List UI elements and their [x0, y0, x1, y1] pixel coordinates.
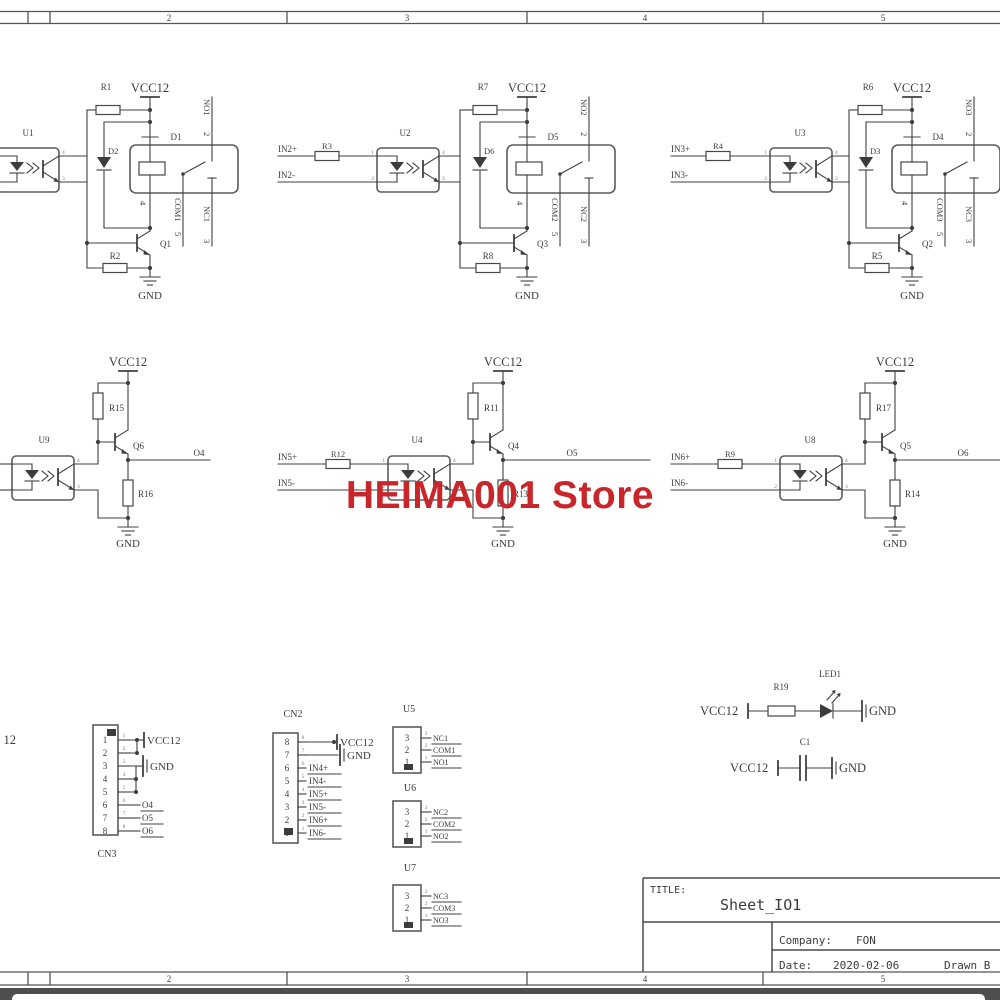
zone-number: 2	[167, 974, 172, 984]
bottom-page-edge	[0, 988, 1000, 1000]
pin-number: 2	[579, 132, 589, 136]
pin-number: 3	[202, 239, 212, 243]
pin-number: 2	[285, 815, 290, 825]
vcc-label: VCC12	[484, 355, 522, 369]
input-port: IN5+	[278, 452, 297, 462]
resistor-icon	[890, 480, 900, 506]
transistor-ref: Q4	[508, 441, 519, 451]
pin-number: 7	[302, 748, 305, 754]
signal-label: NC1	[433, 734, 448, 743]
pin-number: 5	[123, 785, 126, 791]
resistor-icon	[123, 480, 133, 506]
resistor-ref: R6	[863, 82, 874, 92]
title-block: TITLE: Sheet_IO1 Company: FON Date: 2020…	[643, 878, 1000, 972]
npn-transistor-icon	[137, 231, 150, 255]
gnd-label: GND	[900, 290, 924, 302]
resistor-ref: R16	[138, 489, 154, 499]
pin-number: 6	[302, 761, 305, 767]
pin-number: 4	[442, 150, 445, 156]
vcc-label: VCC12	[893, 81, 931, 95]
pin-number: 7	[103, 813, 108, 823]
company-label: Company:	[779, 934, 832, 947]
resistor-icon	[860, 393, 870, 419]
pin-number: 3	[405, 733, 410, 743]
optocoupler-icon	[770, 148, 832, 192]
date-value: 2020-02-06	[833, 959, 899, 972]
cap-ref: C1	[800, 737, 811, 747]
cn3-connector: 1 2 3 4 5 6 7 8 1 2 3 4 5 6 7 8 VCC12 GN…	[93, 725, 181, 860]
connector-ref: U5	[403, 704, 415, 715]
input-port: IN6-	[309, 828, 326, 838]
input-port: IN6+	[671, 452, 690, 462]
power-bar-icon	[886, 371, 904, 378]
input-port: IN3-	[671, 170, 688, 180]
resistor-icon	[865, 264, 889, 273]
pin-number: 8	[302, 735, 305, 741]
drawn-by-label: Drawn B	[944, 959, 991, 972]
pin-number: 4	[302, 787, 305, 793]
resistor-icon	[315, 152, 339, 161]
optocoupler-icon	[12, 456, 74, 500]
transistor-ref: Q1	[160, 239, 171, 249]
pin-number: 4	[515, 201, 525, 206]
relay-icon	[892, 145, 1000, 193]
power-bar-icon	[518, 97, 536, 104]
schematic-page: 2 3 4 5 2 3 4 5 12 VCC12 R1 U1 4 3 Q1 R2…	[0, 0, 1000, 1000]
pin-number: 3	[442, 176, 445, 182]
pin-number: 1	[382, 458, 385, 464]
resistor-ref: R1	[101, 82, 112, 92]
relay-nc-label: NC3	[964, 206, 974, 222]
input-port: IN4-	[309, 776, 326, 786]
pin-number: 3	[77, 484, 80, 490]
resistor-ref: R15	[109, 403, 125, 413]
pin-number: 4	[453, 458, 456, 464]
pin-number: 2	[425, 817, 428, 823]
gnd-label: GND	[491, 538, 515, 550]
pin-number: 2	[371, 176, 374, 182]
resistor-icon	[718, 460, 742, 469]
company-value: FON	[856, 934, 876, 947]
pin-number: 2	[425, 743, 428, 749]
resistor-icon	[858, 106, 882, 115]
resistor-ref: R4	[713, 141, 724, 151]
date-label: Date:	[779, 959, 812, 972]
npn-transistor-icon	[899, 231, 912, 255]
signal-label: NC2	[433, 808, 448, 817]
pin-number: 3	[835, 176, 838, 182]
vcc-label: VCC12	[730, 761, 768, 775]
relay-ref: D5	[548, 132, 559, 142]
zone-number: 5	[881, 13, 886, 23]
relay-com-label: COM1	[173, 198, 183, 222]
transistor-ref: Q2	[922, 239, 933, 249]
output-port: O6	[958, 448, 969, 458]
pin-number: 1	[103, 735, 108, 745]
vcc-label: VCC12	[147, 735, 181, 747]
output-port: O5	[142, 813, 153, 823]
ground-icon	[118, 518, 138, 535]
driver-channel-3: VCC12 R17 Q5 O6 R14 GND IN6+ R9 IN6- U8 …	[671, 355, 1000, 550]
pin-number: 3	[285, 802, 290, 812]
bottom-ruler: 2 3 4 5	[0, 972, 1000, 985]
pin-number: 3	[103, 761, 108, 771]
vcc-label: VCC12	[700, 704, 738, 718]
relay-output-header-u7: U7 3 2 1 3 2 1 NC3 COM3 NO3	[393, 863, 461, 931]
pin-number: 1	[425, 913, 428, 919]
pin-number: 2	[405, 903, 410, 913]
pin-number: 1	[285, 828, 290, 838]
pin-number: 3	[425, 805, 428, 811]
input-port: IN5-	[309, 802, 326, 812]
pin-number: 2	[103, 748, 108, 758]
zone-number: 3	[405, 13, 410, 23]
relay-no-label: NO1	[202, 99, 212, 116]
pin-number: 1	[405, 831, 410, 841]
pin-number: 8	[103, 826, 108, 836]
pin-number: 1	[302, 826, 305, 832]
pin-number: 4	[845, 458, 848, 464]
pin-number: 5	[285, 776, 290, 786]
connector-ref: U6	[404, 783, 416, 794]
vcc-label: VCC12	[876, 355, 914, 369]
resistor-icon	[468, 393, 478, 419]
led-indicator-circuit: LED1 R19 VCC12 GND	[700, 669, 896, 721]
input-port: IN5+	[309, 789, 328, 799]
resistor-ref: R12	[331, 449, 345, 459]
pin-number: 2	[964, 132, 974, 136]
zone-number: 2	[167, 13, 172, 23]
transistor-ref: Q5	[900, 441, 911, 451]
pin-number: 3	[964, 239, 974, 243]
relay-ref: D4	[933, 132, 944, 142]
resistor-ref: R8	[483, 251, 494, 261]
ground-icon	[493, 518, 513, 535]
opto-ref: U9	[39, 435, 50, 445]
gnd-label: GND	[347, 750, 371, 762]
input-port: IN6+	[309, 815, 328, 825]
pin-number: 1	[405, 757, 410, 767]
pin-number: 4	[123, 772, 126, 778]
relay-nc-label: NC1	[202, 206, 212, 222]
transistor-ref: Q3	[537, 239, 548, 249]
resistor-icon	[706, 152, 730, 161]
pin-number: 1	[764, 150, 767, 156]
pin-number: 1	[774, 458, 777, 464]
resistor-ref: R7	[478, 82, 489, 92]
vcc-label: VCC12	[340, 737, 374, 749]
led-ref: LED1	[819, 669, 841, 679]
signal-label: COM1	[433, 746, 455, 755]
capacitor-icon	[800, 756, 806, 780]
pin-number: 5	[550, 232, 560, 236]
pin-number: 4	[62, 150, 65, 156]
pin1-marker	[107, 729, 116, 736]
pin-number: 3	[845, 484, 848, 490]
pin-number: 4	[138, 201, 148, 206]
pin-number: 2	[123, 746, 126, 752]
relay-no-label: NO3	[964, 99, 974, 116]
gnd-label: GND	[116, 538, 140, 550]
vcc-label: VCC12	[109, 355, 147, 369]
pin-number: 2	[302, 813, 305, 819]
input-port: IN6-	[671, 478, 688, 488]
pin-number: 3	[425, 731, 428, 737]
relay-nc-label: NC2	[579, 206, 589, 222]
pin-number: 8	[123, 824, 126, 830]
pin-number: 2	[202, 132, 212, 136]
input-port: IN2+	[278, 144, 297, 154]
signal-label: NO3	[433, 916, 449, 925]
opto-ref: U3	[795, 128, 806, 138]
diode-icon	[859, 157, 873, 170]
power-bar-icon	[494, 371, 512, 378]
pin-number: 8	[285, 737, 290, 747]
zone-number: 4	[643, 974, 648, 984]
pin-number: 5	[935, 232, 945, 236]
pin-number: 1	[425, 755, 428, 761]
pin-number: 1	[405, 915, 410, 925]
npn-transistor-icon	[882, 430, 895, 454]
relay-output-header-u6: U6 3 2 1 3 2 1 NC2 COM2 NO2	[393, 783, 461, 847]
diode-ref: D6	[484, 146, 494, 156]
pin-number: 4	[900, 201, 910, 206]
pin-number: 6	[285, 763, 290, 773]
pin-number: 1	[425, 829, 428, 835]
pin-number: 3	[405, 891, 410, 901]
gnd-label: GND	[150, 761, 174, 773]
vcc-label: VCC12	[508, 81, 546, 95]
ground-icon	[143, 756, 147, 776]
signal-label: COM3	[433, 904, 455, 913]
resistor-icon	[768, 706, 795, 716]
opto-ref: U8	[805, 435, 816, 445]
resistor-icon	[93, 393, 103, 419]
pin-number: 5	[103, 787, 108, 797]
relay-ref: D1	[171, 132, 182, 142]
ground-icon	[832, 758, 836, 778]
ground-icon	[140, 268, 160, 285]
cropped-label-fragment: 12	[4, 733, 17, 747]
pin-number: 6	[103, 800, 108, 810]
pin-number: 2	[764, 176, 767, 182]
input-port: IN3+	[671, 144, 690, 154]
ground-icon	[885, 518, 905, 535]
ground-icon	[517, 268, 537, 285]
resistor-ref: R19	[773, 682, 789, 692]
sheet-title: Sheet_IO1	[720, 896, 801, 914]
output-port: O4	[142, 800, 153, 810]
decoupling-cap-circuit: C1 VCC12 GND	[730, 737, 866, 780]
pin-number: 4	[77, 458, 80, 464]
resistor-ref: R3	[322, 141, 332, 151]
signal-label: NO2	[433, 832, 449, 841]
relay-com-label: COM3	[935, 198, 945, 222]
diode-icon	[97, 157, 111, 170]
output-port: O6	[142, 826, 153, 836]
resistor-icon	[96, 106, 120, 115]
connector-ref: U7	[404, 863, 416, 874]
gnd-label: GND	[515, 290, 539, 302]
pin-number: 5	[173, 232, 183, 236]
output-port: O5	[567, 448, 578, 458]
relay-com-label: COM2	[550, 198, 560, 222]
pin-number: 3	[405, 807, 410, 817]
connector-ref: CN2	[284, 709, 303, 720]
pin-number: 3	[579, 239, 589, 243]
opto-ref: U4	[412, 435, 423, 445]
top-ruler: 2 3 4 5	[0, 12, 1000, 24]
pin-number: 7	[123, 811, 126, 817]
pin-number: 2	[425, 901, 428, 907]
power-bar-icon	[119, 371, 137, 378]
zone-number: 4	[643, 13, 648, 23]
pin-number: 4	[103, 774, 108, 784]
title-label: TITLE:	[650, 885, 686, 896]
relay-no-label: NO2	[579, 99, 589, 116]
pin-number: 7	[285, 750, 290, 760]
resistor-ref: R9	[725, 449, 735, 459]
npn-transistor-icon	[490, 430, 503, 454]
relay-channel-2: VCC12 R7 IN2+ R3 IN2- U2 1 2 4 3 Q3 R8 G…	[278, 81, 615, 302]
vcc-label: VCC12	[131, 81, 169, 95]
npn-transistor-icon	[514, 231, 527, 255]
pin-number: 3	[302, 800, 305, 806]
pin-number: 5	[302, 774, 305, 780]
relay-channel-3: VCC12 R6 IN3+ R4 IN3- U3 1 2 4 3 Q2 R5 G…	[671, 81, 1000, 302]
zone-number: 5	[881, 974, 886, 984]
resistor-ref: R11	[484, 403, 499, 413]
resistor-icon	[103, 264, 127, 273]
pin-number: 1	[123, 733, 126, 739]
store-watermark: HEIMA001 Store	[346, 474, 654, 518]
ground-icon	[862, 701, 866, 721]
pin-number: 3	[425, 889, 428, 895]
npn-transistor-icon	[115, 430, 128, 454]
pin-number: 2	[405, 745, 410, 755]
optocoupler-icon	[377, 148, 439, 192]
relay-channel-1: VCC12 R1 U1 4 3 Q1 R2 GND D2 D1 4 NO1 2 …	[0, 81, 238, 302]
resistor-icon	[476, 264, 500, 273]
gnd-label: GND	[839, 761, 866, 775]
led-icon	[820, 690, 841, 718]
pin-number: 2	[774, 484, 777, 490]
gnd-label: GND	[138, 290, 162, 302]
relay-icon	[130, 145, 238, 193]
zone-number: 3	[405, 974, 410, 984]
opto-ref: U1	[23, 128, 34, 138]
resistor-icon	[326, 460, 350, 469]
optocoupler-icon	[0, 148, 59, 192]
output-port: O4	[194, 448, 205, 458]
signal-label: COM2	[433, 820, 455, 829]
driver-channel-2: VCC12 R11 Q4 O5 R13 GND IN5+ R12 IN5- U4…	[278, 355, 650, 550]
gnd-label: GND	[883, 538, 907, 550]
gnd-label: GND	[869, 704, 896, 718]
opto-ref: U2	[400, 128, 411, 138]
optocoupler-icon	[780, 456, 842, 500]
input-port: IN4+	[309, 763, 328, 773]
input-port: IN5-	[278, 478, 295, 488]
pin-number: 3	[123, 759, 126, 765]
resistor-ref: R5	[872, 251, 883, 261]
diode-ref: D3	[870, 146, 880, 156]
pin-number: 4	[835, 150, 838, 156]
diode-ref: D2	[108, 146, 118, 156]
relay-icon	[507, 145, 615, 193]
power-bar-icon	[141, 97, 159, 104]
ground-icon	[902, 268, 922, 285]
driver-channel-1: VCC12 R15 Q6 O4 R16 GND U9 4 3	[0, 355, 210, 550]
pin-number: 4	[285, 789, 290, 799]
resistor-ref: R14	[905, 489, 921, 499]
resistor-icon	[473, 106, 497, 115]
signal-label: NO1	[433, 758, 449, 767]
resistor-ref: R2	[110, 251, 121, 261]
power-bar-icon	[903, 97, 921, 104]
input-port: IN2-	[278, 170, 295, 180]
cn2-connector: CN2 8 7 6 5 4 3 2 1 8 7 6 5 4 3 2 1 VCC1…	[273, 709, 374, 843]
connector-ref: CN3	[98, 849, 117, 860]
signal-label: NC3	[433, 892, 448, 901]
pin-number: 1	[371, 150, 374, 156]
resistor-ref: R17	[876, 403, 892, 413]
relay-output-header-u5: U5 3 2 1 3 2 1 NC1 COM1 NO1	[393, 704, 461, 773]
transistor-ref: Q6	[133, 441, 144, 451]
pin-number: 2	[405, 819, 410, 829]
pin-number: 6	[123, 798, 126, 804]
diode-icon	[473, 157, 487, 170]
pin-number: 3	[62, 176, 65, 182]
